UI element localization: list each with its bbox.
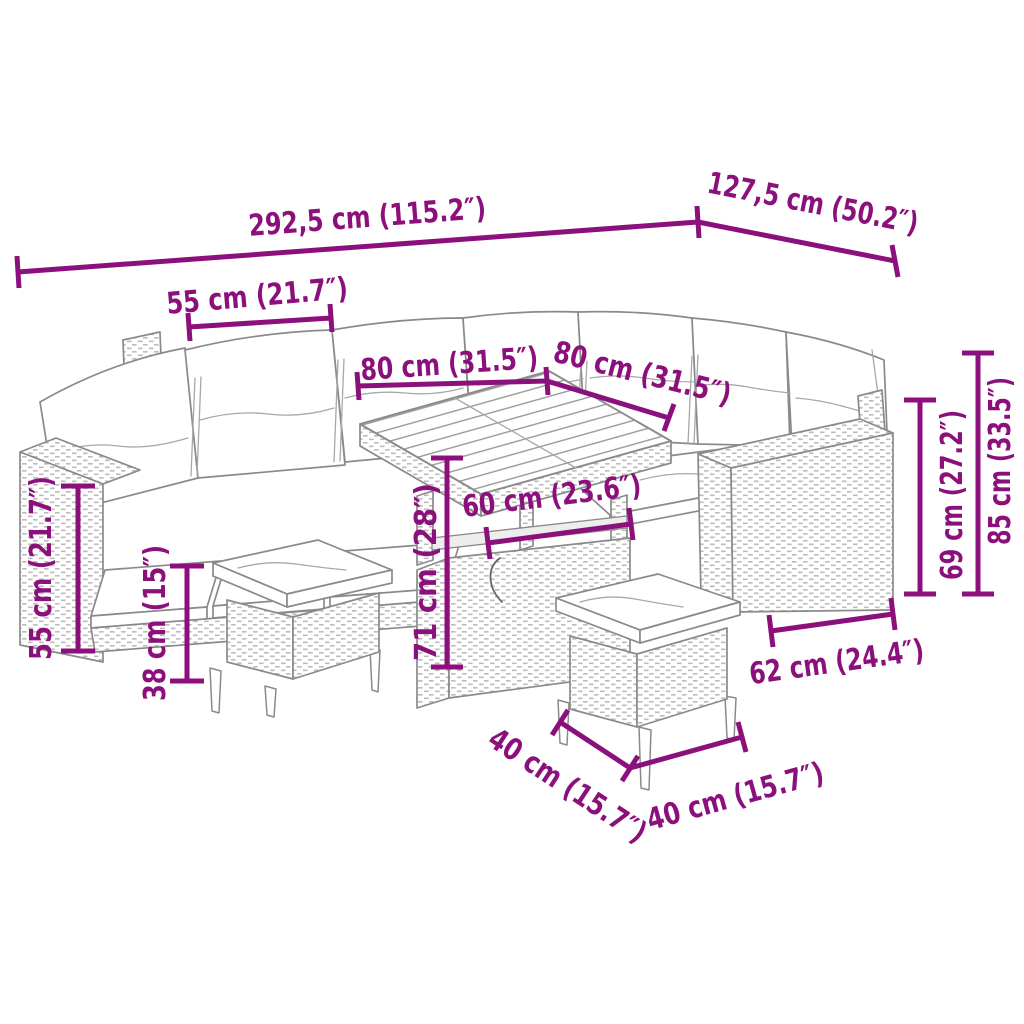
stool-leg [265,686,276,717]
dim-overall-height: 85 cm (33.5″) [962,353,1018,594]
dim-backrest-height: 69 cm (27.2″) [904,400,970,594]
dim-table-height-label: 71 cm (28″) [409,483,444,661]
diagram-canvas: 292,5 cm (115.2″) 127,5 cm (50.2″) 55 cm… [0,0,1024,1024]
dim-overall-height-label: 85 cm (33.5″) [983,377,1018,545]
stool-leg [639,727,651,790]
back-cushion [185,330,345,478]
dim-overall-width-label: 292,5 cm (115.2″) [247,191,487,244]
dim-stool-depth-label: 40 cm (15.7″) [643,756,828,838]
dim-seat-height-label: 55 cm (21.7″) [24,476,59,660]
stool-body-right-face [637,628,727,727]
dim-stool-depth: 40 cm (15.7″) [630,722,828,838]
furniture-dimension-diagram: 292,5 cm (115.2″) 127,5 cm (50.2″) 55 cm… [0,0,1024,1024]
dim-overall-depth: 127,5 cm (50.2″) [698,166,921,277]
dim-seat-section-width-label: 55 cm (21.7″) [165,271,349,322]
stool-leg [725,696,736,740]
dim-backrest-height-label: 69 cm (27.2″) [935,410,970,580]
stool-right [556,574,740,790]
stool-left [210,540,392,717]
dim-stool-height-label: 38 cm (15″) [138,545,173,701]
armrest-side-face [698,454,733,612]
stool-leg [210,668,221,713]
dim-overall-width: 292,5 cm (115.2″) [17,191,699,288]
